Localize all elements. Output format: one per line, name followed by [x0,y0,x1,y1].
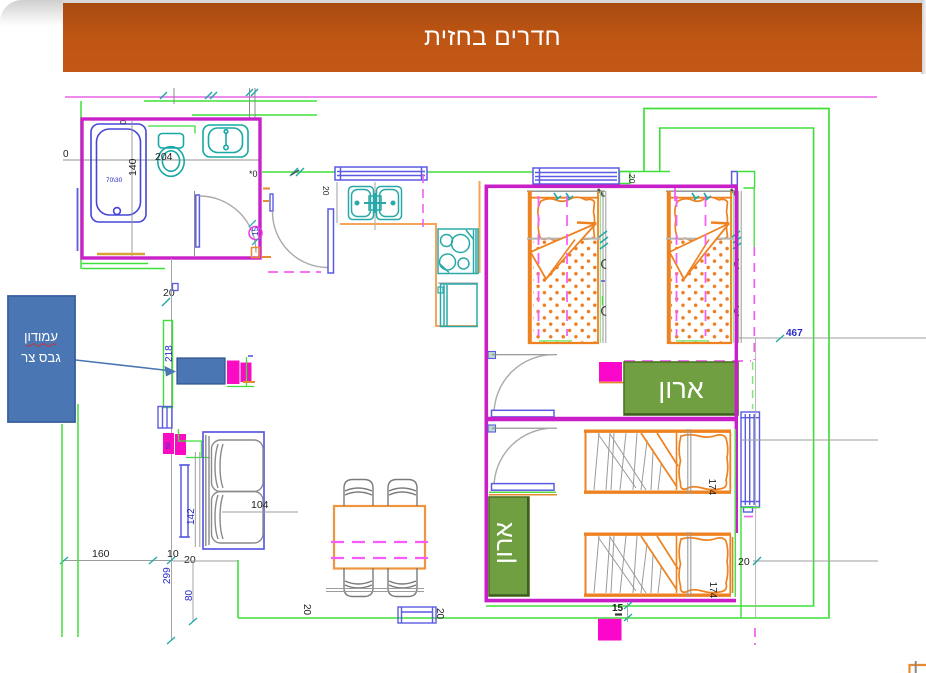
svg-text:*0: *0 [249,169,258,179]
svg-text:50: 50 [166,442,172,449]
svg-text:גבס צר: גבס צר [21,350,61,365]
svg-text:20: 20 [434,608,445,620]
svg-text:15: 15 [251,227,260,236]
svg-text:20: 20 [321,186,331,196]
svg-text:174: 174 [707,582,718,599]
svg-text:140: 140 [127,158,139,176]
svg-text:ארון: ארון [658,374,703,404]
svg-text:70\30: 70\30 [106,177,123,184]
svg-text:174: 174 [706,479,717,496]
svg-text:104: 104 [251,499,269,511]
svg-text:20: 20 [184,554,196,566]
svg-text:160: 160 [92,548,110,560]
svg-text:ארון: ארון [490,522,518,564]
svg-text:20: 20 [738,556,750,568]
svg-text:0: 0 [118,120,127,125]
svg-text:467: 467 [786,328,803,339]
svg-text:218: 218 [164,345,175,362]
svg-text:204: 204 [155,151,173,163]
svg-text:עמודון: עמודון [24,329,58,344]
svg-text:0: 0 [63,149,69,160]
svg-text:20: 20 [627,174,637,184]
svg-text:299: 299 [162,567,173,584]
svg-text:20: 20 [301,604,312,616]
svg-text:15: 15 [612,603,624,614]
